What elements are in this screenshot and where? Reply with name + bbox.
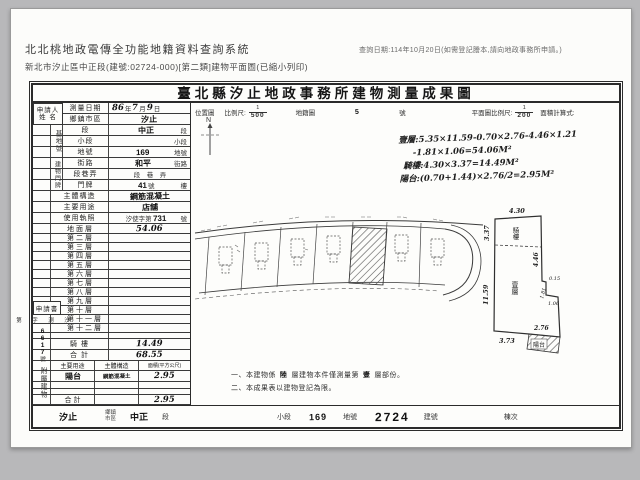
area-calculation-block: 壹層:5.35×11.59-0.70×2.76-4.46×1.21 -1.81×… [398, 127, 618, 187]
survey-month: 7 [132, 103, 138, 113]
area-calc-label: 面積計算式: [540, 107, 574, 117]
floor-row: 第六層 [33, 270, 190, 279]
subject-parcel [349, 227, 387, 285]
floor-row: 第四層 [33, 252, 190, 261]
dim-top: 4.30 [509, 207, 525, 215]
system-title: 北北桃地政電傳全功能地籍資料查詢系統 [25, 41, 250, 57]
bottom-id-strip: 汐止 鄉鎮市區 中正 段 小段 169 地號 2724 建號 棟次 [33, 405, 619, 427]
floor-row: 第八層 [33, 288, 190, 297]
north-compass-icon: N [199, 119, 223, 159]
bottom-subsection-label: 小段 [277, 412, 291, 422]
cadastral-sheet-number: 5 [355, 108, 359, 115]
location-map-label: 位置圖 [195, 107, 215, 117]
document-title: 臺北縣汐止地政事務所建物測量成果圖 [33, 85, 619, 103]
attached-building-tag: 附屬建物 [33, 361, 51, 405]
dim-right: 4.46 [533, 252, 540, 267]
floor-row: 第三層 [33, 243, 190, 252]
arcade-label: 騎樓 [511, 226, 519, 242]
attached-row-total: 合 計 2.95 [33, 395, 190, 405]
scale-bar: 位置圖 比例尺: 1500 地籍圖 5 號 平面圖比例尺: 1200 面積計算式… [195, 105, 615, 119]
dim-notch3: 1.06 [548, 301, 560, 307]
attached-row-balcony: 陽台 鋼筋混凝土 2.95 [33, 371, 190, 382]
bottom-township-value: 汐止 [59, 410, 77, 423]
survey-result-form: 臺北縣汐止地政事務所建物測量成果圖 測量日期 86年 7月 9日 鄉鎮市區 汐止 [31, 83, 621, 429]
note-line-1: 一、本建物係陸層建物本件僅測量第壹層部份。 [231, 369, 405, 382]
bottom-building-number: 2724 [375, 409, 410, 423]
door-tag-label: 建物門牌 [51, 158, 63, 191]
survey-date-label: 測量日期 [63, 103, 109, 113]
dim-balcony-width: 2.76 [533, 325, 549, 332]
dim-notch2: 1.81 [539, 287, 548, 299]
dim-left-top: 3.37 [483, 225, 491, 241]
application-number: 汐測字第6617號 [34, 317, 50, 361]
cadastral-map-label: 地籍圖 [296, 107, 316, 117]
form-row-use: 主要用途 店舖 [33, 202, 190, 213]
bottom-building-label: 建號 [424, 412, 438, 422]
bottom-block-label: 棟次 [504, 412, 518, 422]
floor-plan-figure: 4.30 3.37 騎樓 11.59 壹層 4.46 0.15 1.81 1.0… [479, 203, 619, 372]
site-tag-label: 基地號 [51, 125, 63, 158]
floor-row: 第七層 [33, 279, 190, 288]
bottom-lot-label: 地號 [343, 412, 357, 422]
bottom-section-value: 中正 [130, 410, 148, 423]
dim-notch1: 0.15 [549, 276, 560, 282]
plan-scale-fraction: 1200 [515, 106, 533, 118]
survey-year: 86 [112, 103, 124, 113]
balcony-label: 陽台 [533, 341, 545, 349]
floor-row: 第五層 [33, 261, 190, 270]
left-form: 測量日期 86年 7月 9日 鄉鎮市區 汐止 段 中正段 小段 [33, 103, 191, 405]
bottom-lot-number: 169 [309, 411, 327, 421]
floor-row: 第二層 [33, 234, 190, 243]
bottom-section-label: 段 [162, 412, 169, 422]
note-line-2: 二、本成果表以建物登記為限。 [231, 382, 405, 395]
applicant-name-box: 申請人姓 名 [33, 103, 63, 125]
survey-day: 9 [147, 103, 153, 113]
application-book-box: 申請書 [33, 301, 61, 315]
plan-scale-label: 平面圖比例尺: [472, 107, 513, 117]
form-row-structure: 主體構造 鋼筋混凝土 [33, 191, 190, 202]
form-row-license: 使用執照 汐使字第731號 [33, 213, 190, 224]
floor-row-arcade: 騎 樓14.49 [33, 339, 190, 350]
attached-row-blank [33, 382, 190, 389]
query-date: 查詢日期:114年10月20日(如需登記謄本,請向地政事務所申請。) [359, 45, 562, 55]
dim-bottom: 3.73 [499, 337, 515, 345]
floor-row-total: 合 計68.55 [33, 350, 190, 361]
bottom-township-label: 鄉鎮市區 [105, 411, 116, 422]
floor-label: 壹層 [511, 280, 519, 296]
dim-left: 11.59 [482, 284, 490, 305]
page-subtitle: 新北市汐止區中正段(建號:02724-000)[第二類]建物平面圖(已縮小列印) [25, 61, 308, 73]
floor-row-ground: 地面層 54.06 [33, 224, 190, 234]
notes-block: 一、本建物係陸層建物本件僅測量第壹層部份。 二、本成果表以建物登記為限。 [231, 369, 405, 395]
location-map-figure [193, 205, 487, 308]
scanned-page: 北北桃地政電傳全功能地籍資料查詢系統 查詢日期:114年10月20日(如需登記謄… [10, 8, 632, 448]
location-scale-fraction: 1500 [249, 106, 267, 118]
attached-header-row: 主要用途 主體構造 面積(平方公尺) [33, 361, 190, 371]
